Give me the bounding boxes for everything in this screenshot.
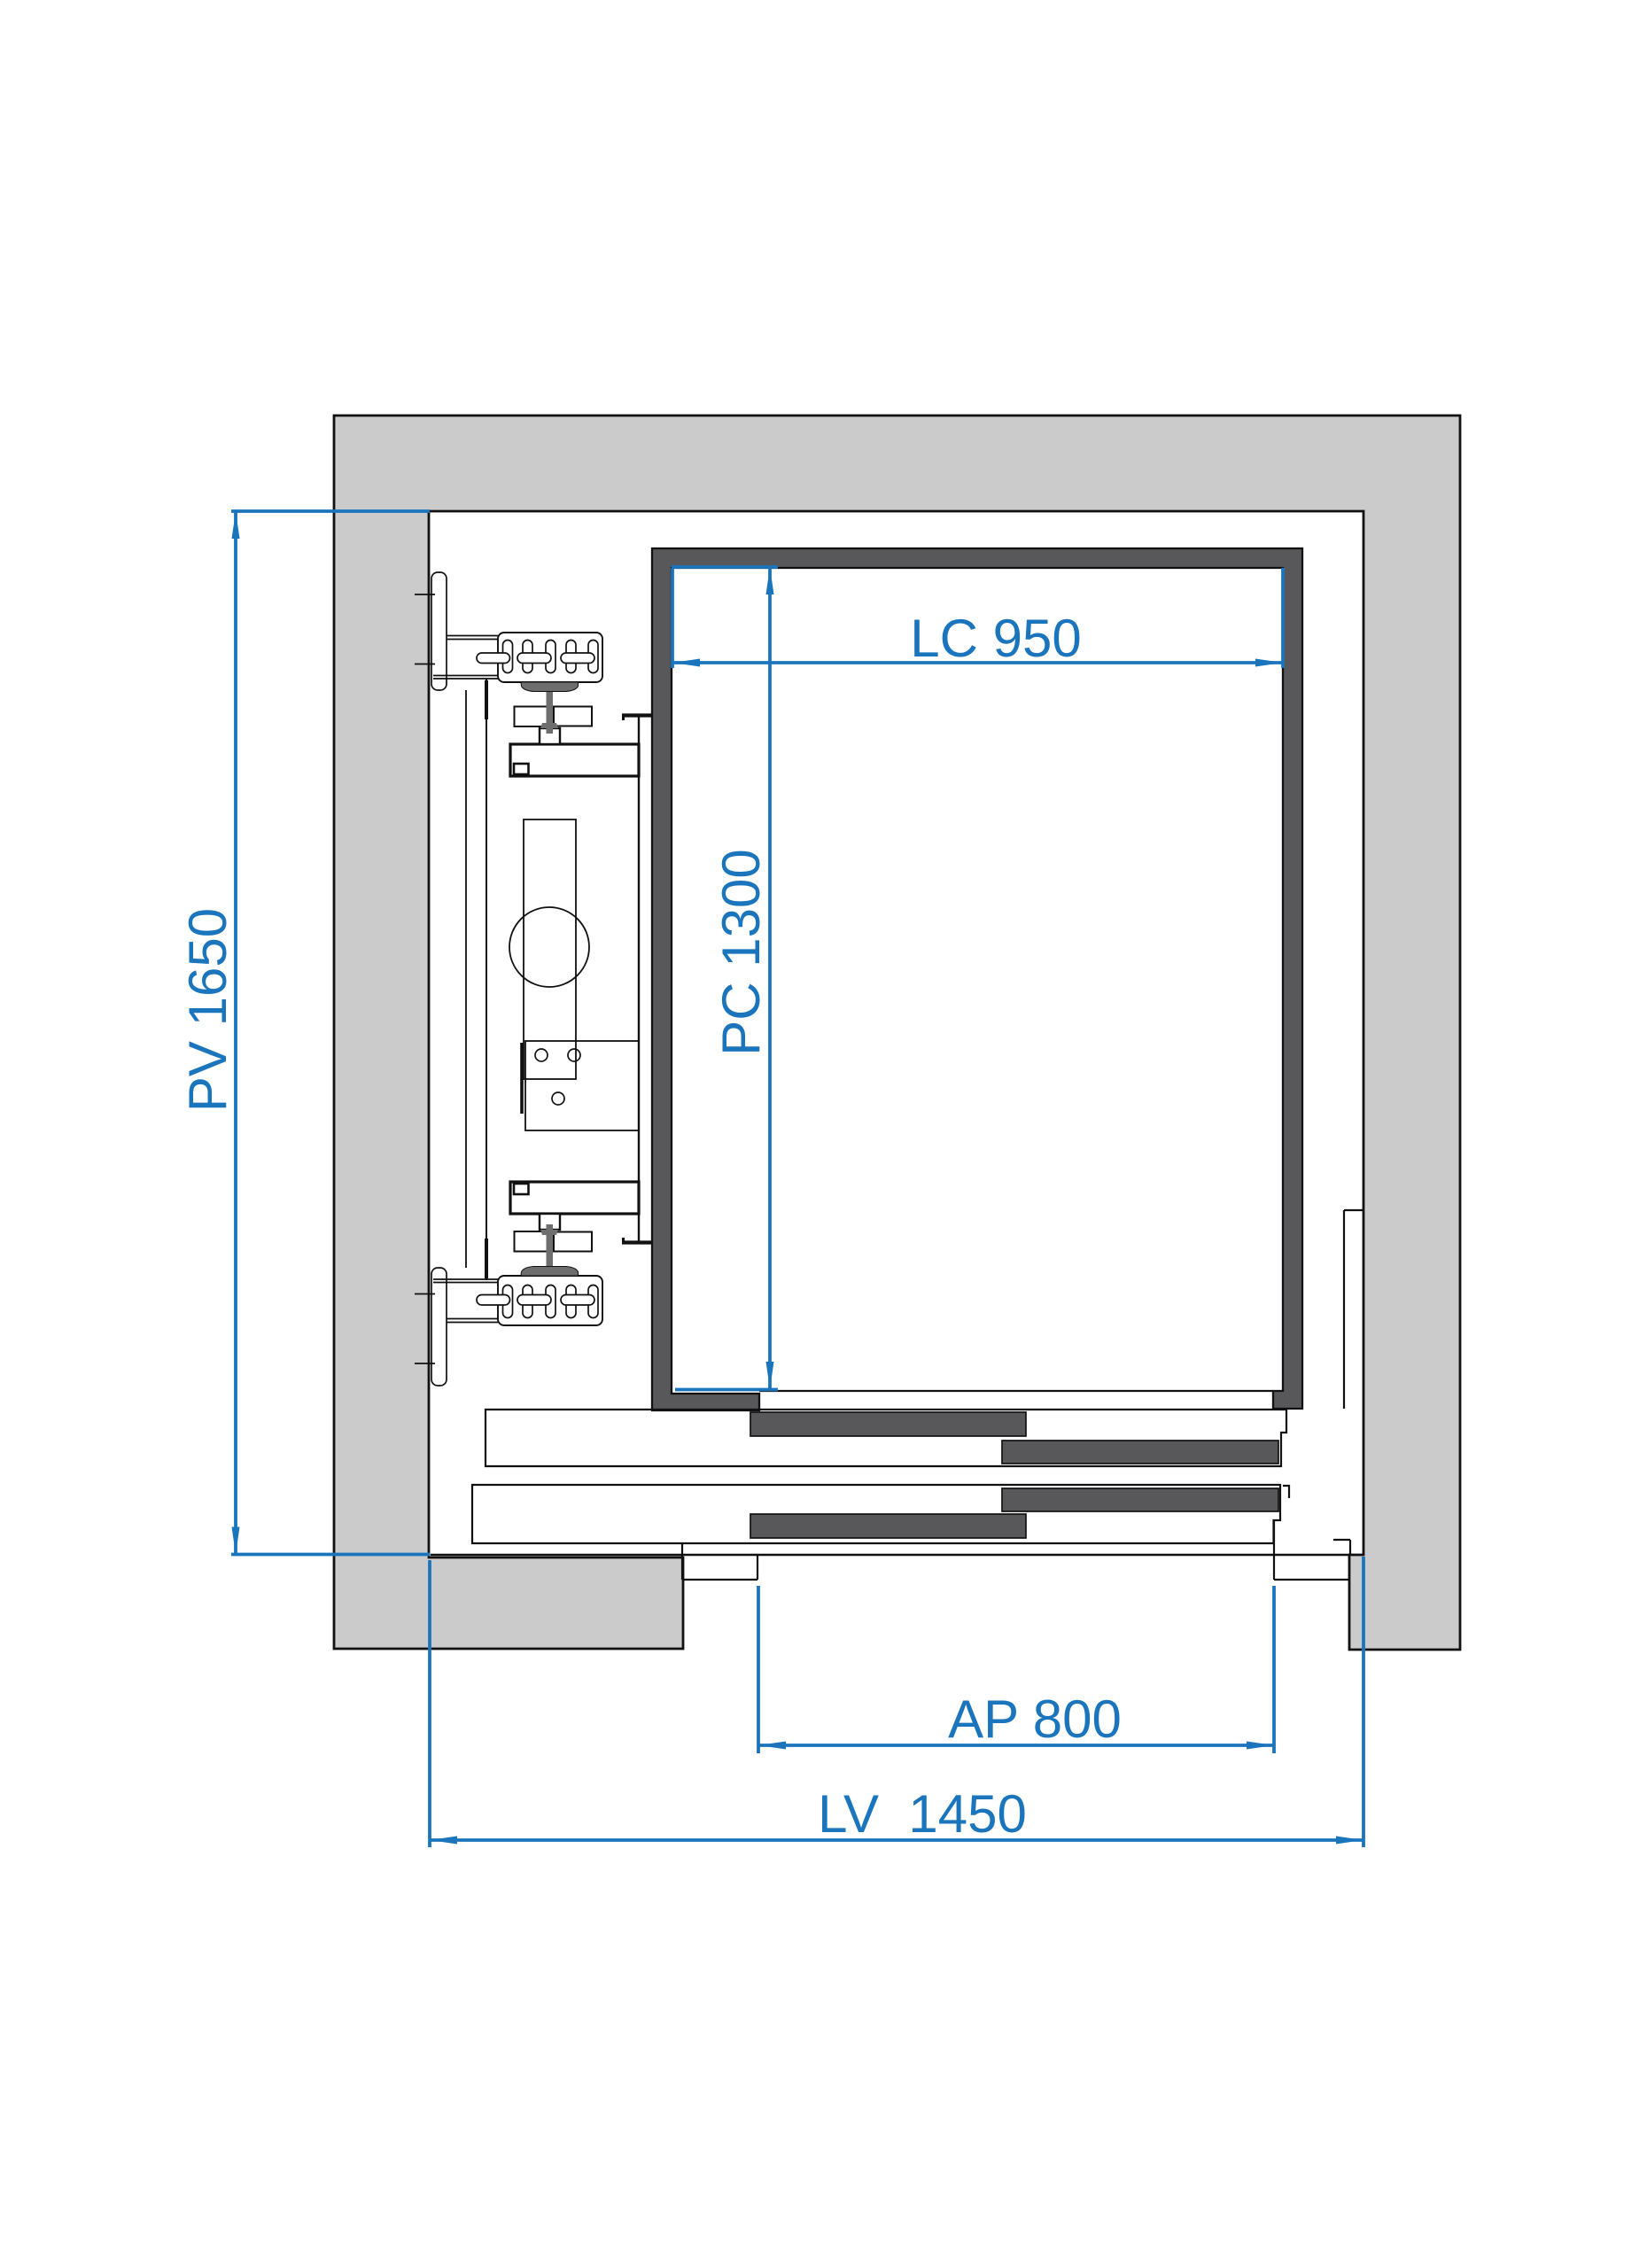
svg-text:LV 1450: LV 1450 <box>818 1784 1027 1844</box>
svg-text:PV 1650: PV 1650 <box>178 908 237 1112</box>
svg-text:AP 800: AP 800 <box>948 1689 1122 1749</box>
svg-text:LC 950: LC 950 <box>910 609 1081 668</box>
svg-text:PC 1300: PC 1300 <box>711 849 771 1056</box>
